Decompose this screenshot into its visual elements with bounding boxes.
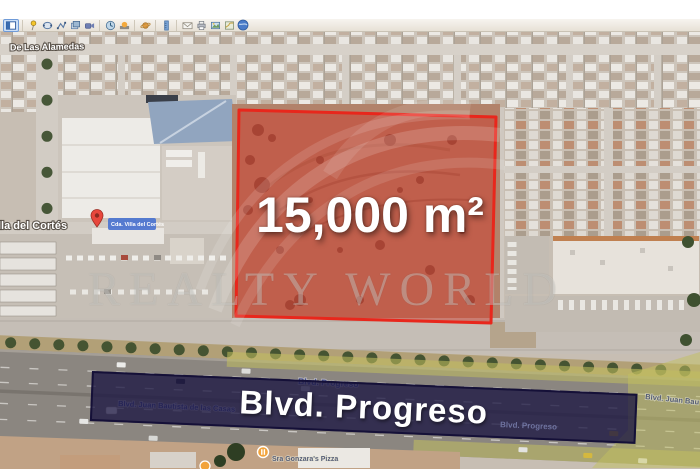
toolbar-bar — [0, 18, 700, 32]
add-placemark-icon — [28, 20, 39, 31]
print-button[interactable] — [195, 19, 208, 31]
pin-label-text: Cda. Villa del Cortés — [111, 222, 164, 228]
window-top-strip — [0, 0, 700, 18]
view-in-maps-icon — [224, 20, 235, 31]
save-image-icon — [210, 20, 221, 31]
road-label-progreso-bottom: Blvd. Progreso — [500, 420, 557, 431]
toolbar-separator — [155, 20, 156, 31]
ruler-button[interactable] — [160, 19, 173, 31]
parcel-area-label: 15,000 m² — [238, 190, 502, 240]
toolbar-separator — [134, 20, 135, 31]
street-label-alamedas: De Las Alamedas — [10, 41, 84, 52]
add-polygon-icon — [42, 20, 53, 31]
sidebar-toggle-icon — [5, 20, 17, 31]
add-polygon-button[interactable] — [41, 19, 54, 31]
add-image-overlay-button[interactable] — [69, 19, 82, 31]
sunlight-icon — [119, 20, 130, 31]
globe-button[interactable] — [237, 19, 250, 31]
planets-icon — [140, 20, 151, 31]
historical-imagery-icon — [105, 20, 116, 31]
toolbar-separator — [99, 20, 100, 31]
add-image-overlay-icon — [70, 20, 81, 31]
email-icon — [182, 20, 193, 31]
google-earth-window: De Las Alamedas lla del Cortés Cda. Vill… — [0, 0, 700, 469]
toolbar-separator — [22, 20, 23, 31]
poi-marker-partial[interactable] — [200, 461, 210, 469]
sidebar-toggle-button[interactable] — [3, 19, 19, 32]
pin-label-box[interactable]: Cda. Villa del Cortés — [108, 218, 164, 230]
historical-imagery-button[interactable] — [104, 19, 117, 31]
save-image-button[interactable] — [209, 19, 222, 31]
add-path-icon — [56, 20, 67, 31]
globe-icon — [237, 19, 249, 31]
record-tour-button[interactable] — [83, 19, 96, 31]
email-button[interactable] — [181, 19, 194, 31]
record-tour-icon — [84, 20, 95, 31]
street-label-cortes: lla del Cortés — [0, 220, 67, 232]
planets-button[interactable] — [139, 19, 152, 31]
sunlight-button[interactable] — [118, 19, 131, 31]
poi-restaurant-marker[interactable] — [258, 447, 269, 458]
ruler-icon — [161, 20, 172, 31]
view-in-maps-button[interactable] — [223, 19, 236, 31]
poi-label-pizza: Sra Gonzara's Pizza — [272, 456, 338, 463]
add-placemark-button[interactable] — [27, 19, 40, 31]
toolbar-separator — [176, 20, 177, 31]
add-path-button[interactable] — [55, 19, 68, 31]
print-icon — [196, 20, 207, 31]
boulevard-banner-label: Blvd. Progreso — [239, 383, 489, 431]
